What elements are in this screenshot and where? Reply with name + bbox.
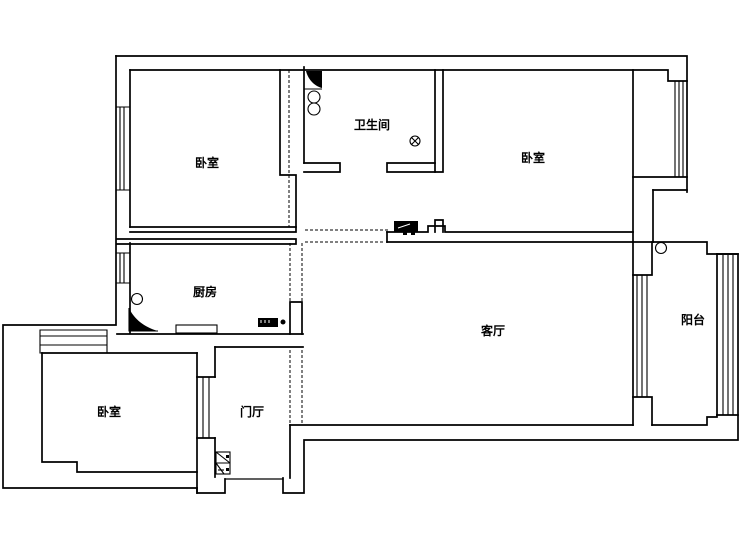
window-bedroom-top-left (116, 107, 130, 190)
corner-sink-icon (129, 308, 158, 331)
room-label-bedroom-bottom-left: 卧室 (97, 404, 121, 419)
window-living-balcony (637, 275, 647, 397)
window-balcony-right (723, 255, 733, 415)
windows (40, 81, 733, 438)
room-label-kitchen: 厨房 (193, 284, 217, 299)
basin-circle-icon (308, 103, 320, 115)
room-label-bathroom: 卫生间 (354, 117, 390, 132)
room-label-bedroom-top-right: 卧室 (521, 150, 545, 165)
room-label-bedroom-top-left: 卧室 (195, 155, 219, 170)
floor-plan-drawing: 卧室 卫生间 卧室 厨房 客厅 阳台 卧室 门厅 (0, 0, 740, 550)
window-foyer (203, 377, 209, 438)
balcony-fixtures (656, 243, 667, 254)
floor-plan: 卧室 卫生间 卧室 厨房 客厅 阳台 卧室 门厅 (0, 0, 740, 550)
counter-icon (176, 325, 217, 333)
window-bedroom-bottom-left (40, 330, 107, 353)
corner-shower-icon (306, 71, 322, 88)
basin-circle-icon (308, 91, 320, 103)
room-label-balcony: 阳台 (681, 312, 705, 327)
entry-door-fixture-icon (216, 452, 230, 474)
stove-icon (258, 318, 286, 327)
cabinet-block-icon (394, 221, 418, 235)
burner-circle-icon (132, 294, 143, 305)
window-bedroom-top-right-bay (675, 81, 683, 177)
balcony-corner-circle-icon (656, 243, 667, 254)
floor-drain-icon (410, 136, 420, 146)
room-label-living-room: 客厅 (480, 323, 505, 338)
room-label-foyer: 门厅 (240, 404, 264, 419)
kitchen-fixtures (129, 294, 286, 334)
bathroom-fixtures (304, 71, 420, 146)
window-kitchen (116, 253, 130, 283)
